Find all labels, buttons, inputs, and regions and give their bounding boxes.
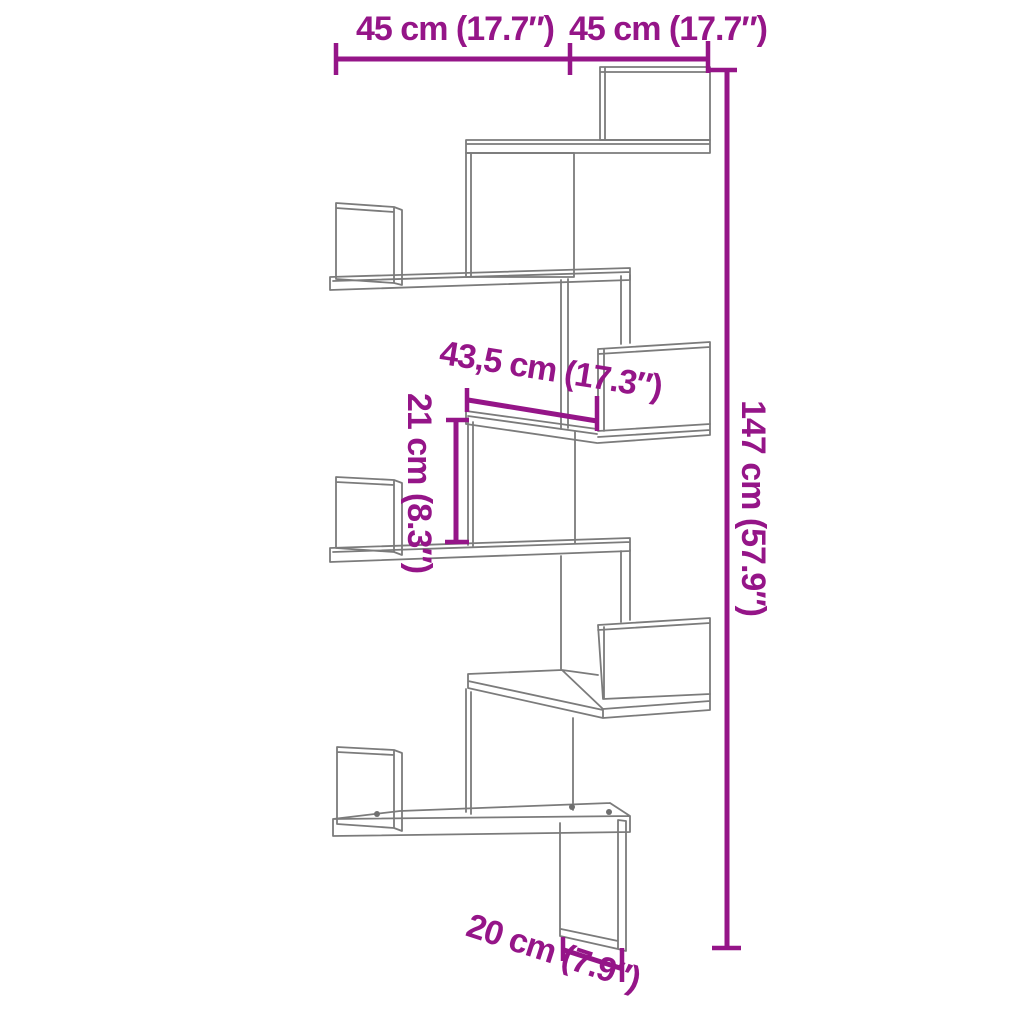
tier2-shelf bbox=[330, 268, 630, 290]
dimension-annotations: 45 cm (17.7″) 45 cm (17.7″) 147 cm (57.9… bbox=[336, 10, 772, 998]
tier6-bottom-shelf bbox=[333, 803, 630, 836]
corner-shelf-dimension-diagram: 45 cm (17.7″) 45 cm (17.7″) 147 cm (57.9… bbox=[0, 0, 1024, 1024]
dim-total-height: 147 cm (57.9″) bbox=[710, 70, 772, 948]
tier5-shelf bbox=[468, 670, 710, 718]
tier6-hanging-panel bbox=[560, 820, 626, 951]
dim-shelf-gap-height: 21 cm (8.3″) bbox=[400, 393, 469, 573]
tier5-right-board bbox=[598, 618, 710, 699]
cam-hole bbox=[606, 809, 612, 815]
tier4-left-board bbox=[336, 477, 402, 555]
tier4-side-panels bbox=[561, 550, 630, 670]
tier1-vertical-panel bbox=[466, 153, 574, 277]
dim-label-shelf-gap: 21 cm (8.3″) bbox=[400, 393, 438, 573]
tier1-right-board bbox=[600, 67, 710, 140]
dim-top-widths: 45 cm (17.7″) 45 cm (17.7″) bbox=[336, 10, 767, 75]
dim-label-middle-shelf-width: 43,5 cm (17.3″) bbox=[437, 334, 664, 407]
dim-label-total-height: 147 cm (57.9″) bbox=[734, 400, 772, 616]
cam-hole bbox=[569, 804, 575, 810]
dim-label-top-left-width: 45 cm (17.7″) bbox=[356, 10, 554, 48]
shelf-drawing bbox=[330, 67, 710, 951]
dim-label-top-right-width: 45 cm (17.7″) bbox=[569, 10, 767, 48]
tier1-shelf bbox=[466, 140, 710, 153]
tier4-shelf bbox=[330, 538, 630, 562]
diagram-canvas: 45 cm (17.7″) 45 cm (17.7″) 147 cm (57.9… bbox=[0, 0, 1024, 1024]
cam-hole bbox=[374, 811, 380, 817]
tier2-left-board bbox=[336, 203, 402, 285]
